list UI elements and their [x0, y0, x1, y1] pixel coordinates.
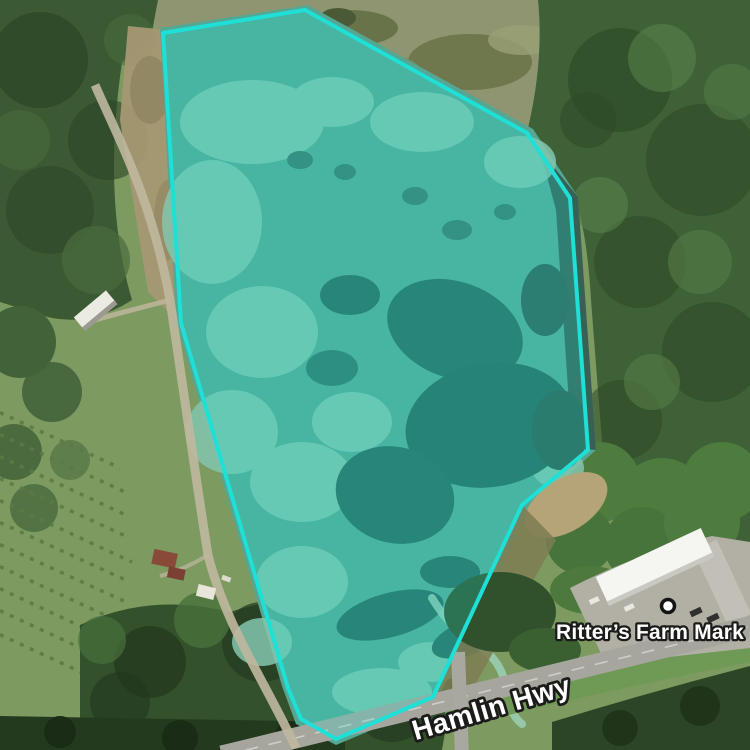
map-canvas[interactable]: Ritter’s Farm Mark Hamlin Hwy — [0, 0, 750, 750]
poi-label: Ritter’s Farm Mark — [556, 621, 744, 644]
poi-marker[interactable] — [662, 600, 675, 613]
